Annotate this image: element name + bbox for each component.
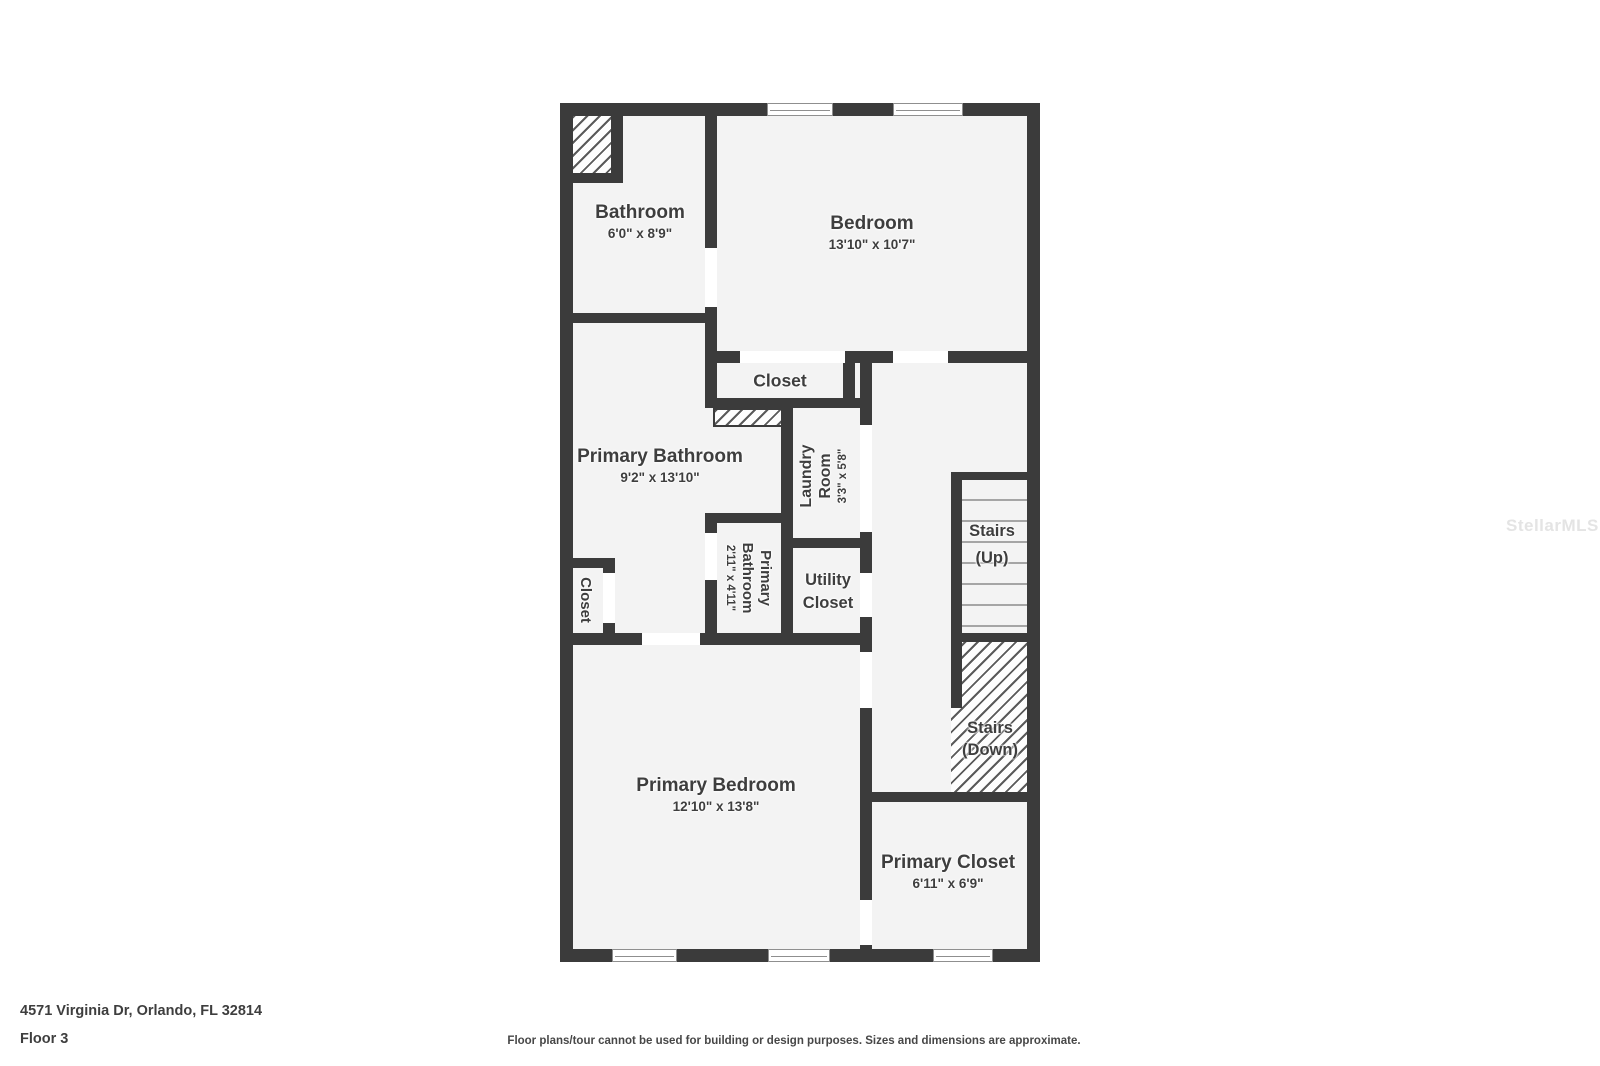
window — [767, 103, 833, 116]
room-name: Stairs — [969, 518, 1015, 545]
room-label-laundry: Laundry Room 3'3" x 5'8" — [797, 444, 851, 507]
wall-exterior-right — [1027, 103, 1040, 962]
wall-stairs-up-top — [951, 472, 1027, 480]
room-dims: 3'3" x 5'8" — [835, 444, 851, 507]
wall-stairs-down-bottom — [860, 792, 1027, 802]
room-label-primary-bedroom: Primary Bedroom 12'10" x 13'8" — [636, 775, 795, 817]
wall-shower-bottom — [560, 173, 623, 183]
wall-bedroom-closet-right — [843, 363, 855, 408]
disclaimer-text: Floor plans/tour cannot be used for buil… — [507, 1035, 1080, 1047]
room-dims: 12'10" x 13'8" — [636, 797, 795, 817]
room-name: Stairs — [962, 717, 1018, 739]
window — [933, 949, 993, 962]
room-dims: 13'10" x 10'7" — [829, 235, 916, 255]
room-name: Bathroom — [595, 202, 685, 224]
door-opening-bedroom-closet — [740, 351, 845, 363]
room-dims: 9'2" x 13'10" — [577, 468, 743, 488]
door-opening-primary-bathroom — [642, 633, 700, 645]
window — [768, 949, 830, 962]
room-label-primary-bathroom-small: Primary Bathroom 2'11" x 4'11" — [722, 543, 774, 614]
room-label-stairs-down: Stairs (Down) — [962, 717, 1018, 761]
room-label-bathroom: Bathroom 6'0" x 8'9" — [595, 202, 685, 244]
door-opening-bedroom — [893, 351, 948, 363]
room-name: (Down) — [962, 739, 1018, 761]
door-opening-primary-bathroom-small — [705, 533, 717, 580]
room-name: Closet — [576, 577, 594, 623]
floor-number-text: Floor 3 — [20, 1031, 68, 1047]
shower-hatch — [573, 116, 611, 173]
room-label-primary-bathroom: Primary Bathroom 9'2" x 13'10" — [577, 446, 743, 488]
window — [893, 103, 963, 116]
room-name: Primary Closet — [881, 852, 1015, 874]
room-name: Closet — [753, 370, 806, 393]
room-name: Room — [816, 444, 835, 507]
room-name: Primary Bathroom — [577, 446, 743, 468]
window — [612, 949, 677, 962]
wall-stairs-left — [951, 472, 962, 708]
floor-plan-canvas: Bathroom 6'0" x 8'9" Bedroom 13'10" x 10… — [0, 0, 1600, 1066]
room-name: Utility — [803, 569, 853, 592]
room-label-hall-closet: Closet — [576, 577, 594, 623]
wall-exterior-left — [560, 103, 573, 962]
wall-hallway-left — [860, 351, 872, 792]
wall-stairs-up-bottom — [951, 633, 1027, 642]
room-name: Bathroom — [738, 543, 756, 614]
stellar-mls-watermark: StellarMLS — [1506, 516, 1599, 536]
room-name: Closet — [803, 592, 853, 615]
door-opening-utility-closet — [860, 573, 872, 617]
wall-bathroom-bottom — [560, 313, 717, 323]
room-name: Primary — [756, 543, 774, 614]
room-label-bedroom: Bedroom 13'10" x 10'7" — [829, 213, 916, 255]
room-dims: 2'11" x 4'11" — [722, 543, 738, 614]
room-dims: 6'11" x 6'9" — [881, 874, 1015, 894]
room-name: Bedroom — [829, 213, 916, 235]
door-opening-primary-bedroom-hall — [860, 652, 872, 708]
room-label-stairs-up: Stairs (Up) — [969, 518, 1015, 572]
room-label-utility-closet: Utility Closet — [803, 569, 853, 615]
room-dims: 6'0" x 8'9" — [595, 224, 685, 244]
wall-primary-bathroom-small-top — [705, 513, 793, 523]
half-wall-hatch — [713, 408, 783, 427]
door-opening-primary-closet — [860, 900, 872, 945]
room-name: Primary Bedroom — [636, 775, 795, 797]
door-opening-bathroom — [705, 248, 717, 307]
room-label-primary-closet: Primary Closet 6'11" x 6'9" — [881, 852, 1015, 894]
room-name: Laundry — [797, 444, 816, 507]
door-opening-laundry — [860, 425, 872, 532]
wall-laundry-bottom — [781, 538, 872, 548]
address-text: 4571 Virginia Dr, Orlando, FL 32814 — [20, 1003, 262, 1019]
door-opening-hall-closet — [603, 573, 615, 623]
room-name: (Up) — [969, 545, 1015, 572]
wall-laundry-left — [781, 408, 793, 645]
room-label-bedroom-closet: Closet — [753, 370, 806, 393]
